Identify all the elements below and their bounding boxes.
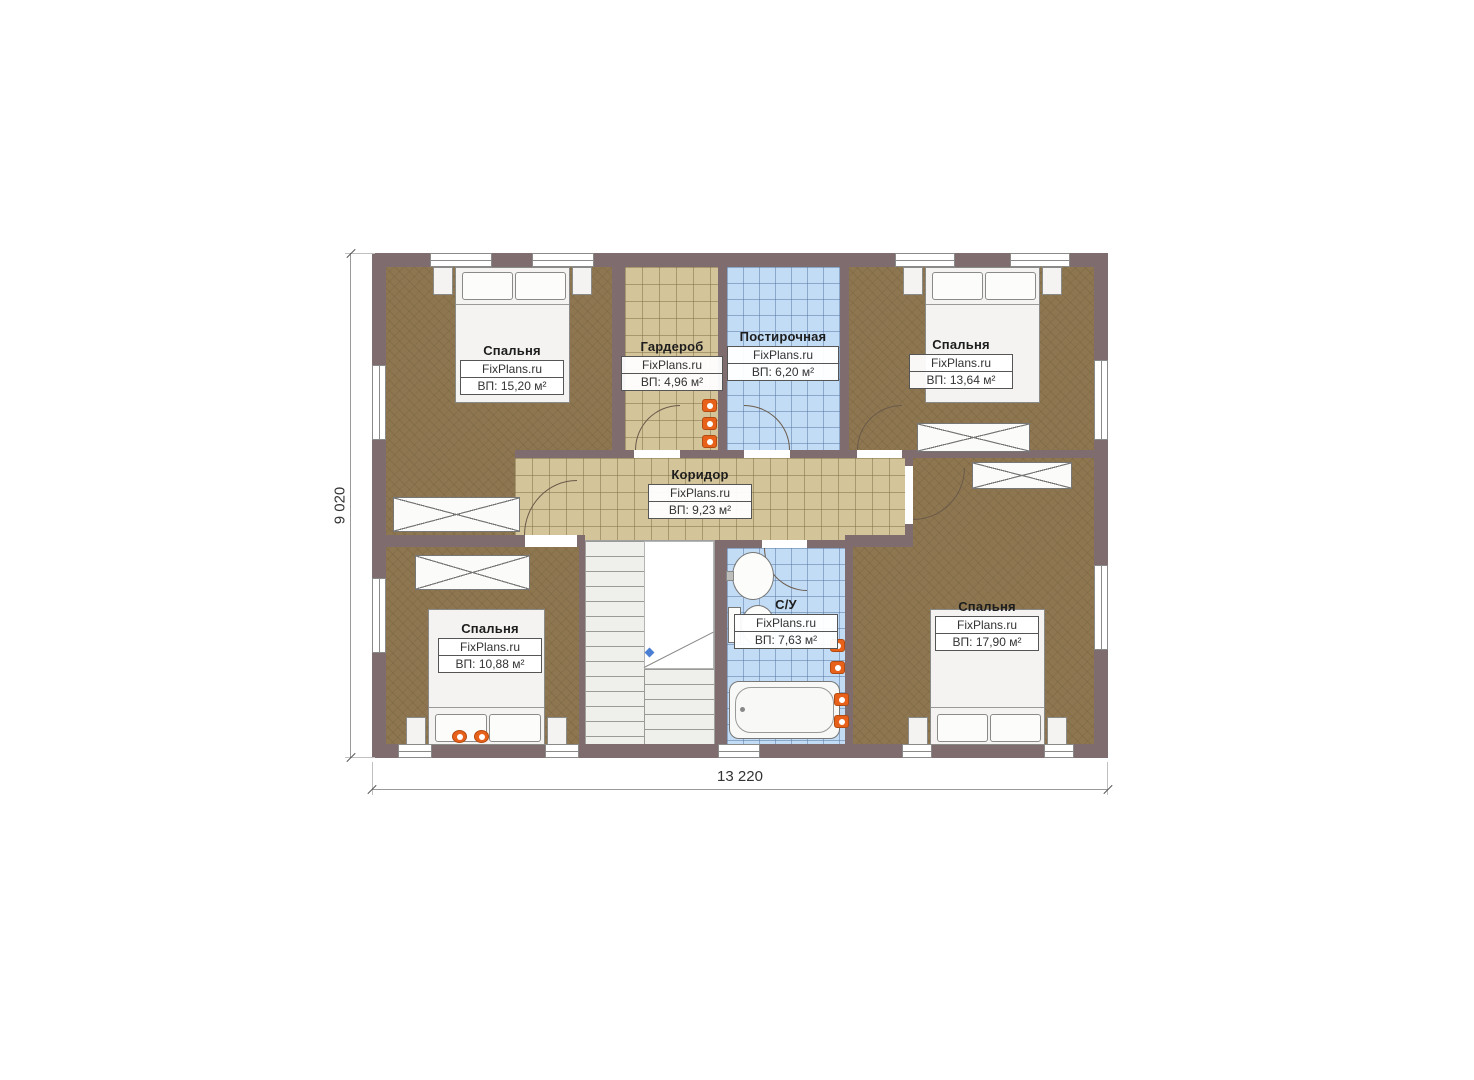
dimension-line-horizontal — [372, 789, 1108, 790]
outlet-icon — [834, 715, 849, 728]
room-label-wardrobe: Гардероб FixPlans.ru ВП: 4,96 м² — [621, 339, 723, 391]
window — [902, 744, 932, 758]
room-name: С/У — [734, 597, 838, 612]
bathtub-icon — [729, 681, 840, 739]
room-name: Спальня — [909, 337, 1013, 352]
dimension-label-width: 13 220 — [372, 768, 1108, 785]
staircase — [585, 540, 715, 745]
sink-icon — [732, 552, 774, 600]
nightstand — [572, 267, 592, 295]
stair-flight-left — [586, 541, 645, 744]
window — [532, 253, 594, 267]
pillow — [990, 714, 1041, 742]
room-watermark: FixPlans.ru — [649, 485, 751, 502]
room-name: Постирочная — [727, 329, 839, 344]
room-watermark: FixPlans.ru — [439, 639, 541, 656]
room-label-corridor: Коридор FixPlans.ru ВП: 9,23 м² — [648, 467, 752, 519]
room-watermark: FixPlans.ru — [735, 615, 837, 632]
room-watermark: FixPlans.ru — [461, 361, 563, 378]
room-watermark: FixPlans.ru — [728, 347, 838, 364]
room-area: ВП: 9,23 м² — [649, 502, 751, 518]
closet-crossbox — [415, 555, 530, 590]
window — [1044, 744, 1074, 758]
interior-wall-stair-left — [579, 540, 585, 745]
door-opening-laundry — [744, 450, 790, 458]
room-label-bathroom: С/У FixPlans.ru ВП: 7,63 м² — [734, 597, 838, 649]
pillow — [937, 714, 988, 742]
window — [545, 744, 579, 758]
outlet-icon — [474, 730, 489, 743]
outlet-icon — [702, 435, 717, 448]
room-name: Спальня — [935, 599, 1039, 614]
nightstand — [903, 267, 923, 295]
stair-flight-right — [644, 669, 714, 744]
dimension-label-height: 9 020 — [332, 466, 349, 546]
faucet-icon — [726, 571, 734, 581]
room-area: ВП: 17,90 м² — [936, 634, 1038, 650]
interior-wall-segment — [845, 535, 913, 547]
nightstand — [1047, 717, 1067, 745]
room-label-laundry: Постирочная FixPlans.ru ВП: 6,20 м² — [727, 329, 839, 381]
room-label-bedroom-bottom-left: Спальня FixPlans.ru ВП: 10,88 м² — [438, 621, 542, 673]
outlet-icon — [702, 399, 717, 412]
window — [1094, 565, 1108, 650]
room-label-bedroom-top-right: Спальня FixPlans.ru ВП: 13,64 м² — [909, 337, 1013, 389]
blanket-fold — [456, 304, 569, 305]
outlet-icon — [452, 730, 467, 743]
outlet-icon — [702, 417, 717, 430]
nightstand — [1042, 267, 1062, 295]
window — [895, 253, 955, 267]
door-opening-bedroom-tr — [857, 450, 902, 458]
room-area: ВП: 4,96 м² — [622, 374, 722, 390]
exterior-wall-left — [372, 253, 386, 758]
door-opening-bedroom-bl — [525, 535, 577, 547]
window — [398, 744, 432, 758]
nightstand — [406, 717, 426, 745]
door-opening-wardrobe — [634, 450, 680, 458]
pillow — [489, 714, 541, 742]
room-label-bedroom-bottom-right: Спальня FixPlans.ru ВП: 17,90 м² — [935, 599, 1039, 651]
room-name: Спальня — [438, 621, 542, 636]
room-area: ВП: 15,20 м² — [461, 378, 563, 394]
pillow — [985, 272, 1036, 300]
bathtub-inner — [735, 687, 834, 733]
room-area: ВП: 6,20 м² — [728, 364, 838, 380]
room-watermark: FixPlans.ru — [622, 357, 722, 374]
room-name: Коридор — [648, 467, 752, 482]
interior-wall — [840, 267, 849, 458]
outlet-icon — [834, 693, 849, 706]
nightstand — [547, 717, 567, 745]
pillow — [932, 272, 983, 300]
closet-crossbox — [917, 423, 1030, 452]
nightstand — [908, 717, 928, 745]
window — [1094, 360, 1108, 440]
room-watermark: FixPlans.ru — [910, 355, 1012, 372]
door-opening-bathroom — [762, 540, 807, 548]
room-watermark: FixPlans.ru — [936, 617, 1038, 634]
room-area: ВП: 7,63 м² — [735, 632, 837, 648]
room-name: Спальня — [460, 343, 564, 358]
outlet-icon — [830, 661, 845, 674]
closet-crossbox — [393, 497, 520, 532]
room-area: ВП: 13,64 м² — [910, 372, 1012, 388]
room-area: ВП: 10,88 м² — [439, 656, 541, 672]
blanket-fold — [429, 707, 544, 708]
exterior-wall-right — [1094, 253, 1108, 758]
floor-plan: Спальня FixPlans.ru ВП: 15,20 м² Гардеро… — [372, 253, 1108, 758]
window — [718, 744, 760, 758]
blanket-fold — [931, 707, 1044, 708]
room-name: Гардероб — [621, 339, 723, 354]
closet-crossbox — [972, 462, 1072, 489]
dimension-line-vertical — [350, 253, 351, 758]
bathtub-drain — [740, 707, 745, 712]
window — [372, 365, 386, 440]
pillow — [462, 272, 513, 300]
nightstand — [433, 267, 453, 295]
door-opening-bedroom-br — [905, 466, 913, 524]
blanket-fold — [926, 304, 1039, 305]
window — [430, 253, 492, 267]
window — [1010, 253, 1070, 267]
room-label-bedroom-top-left: Спальня FixPlans.ru ВП: 15,20 м² — [460, 343, 564, 395]
window — [372, 578, 386, 653]
pillow — [515, 272, 566, 300]
